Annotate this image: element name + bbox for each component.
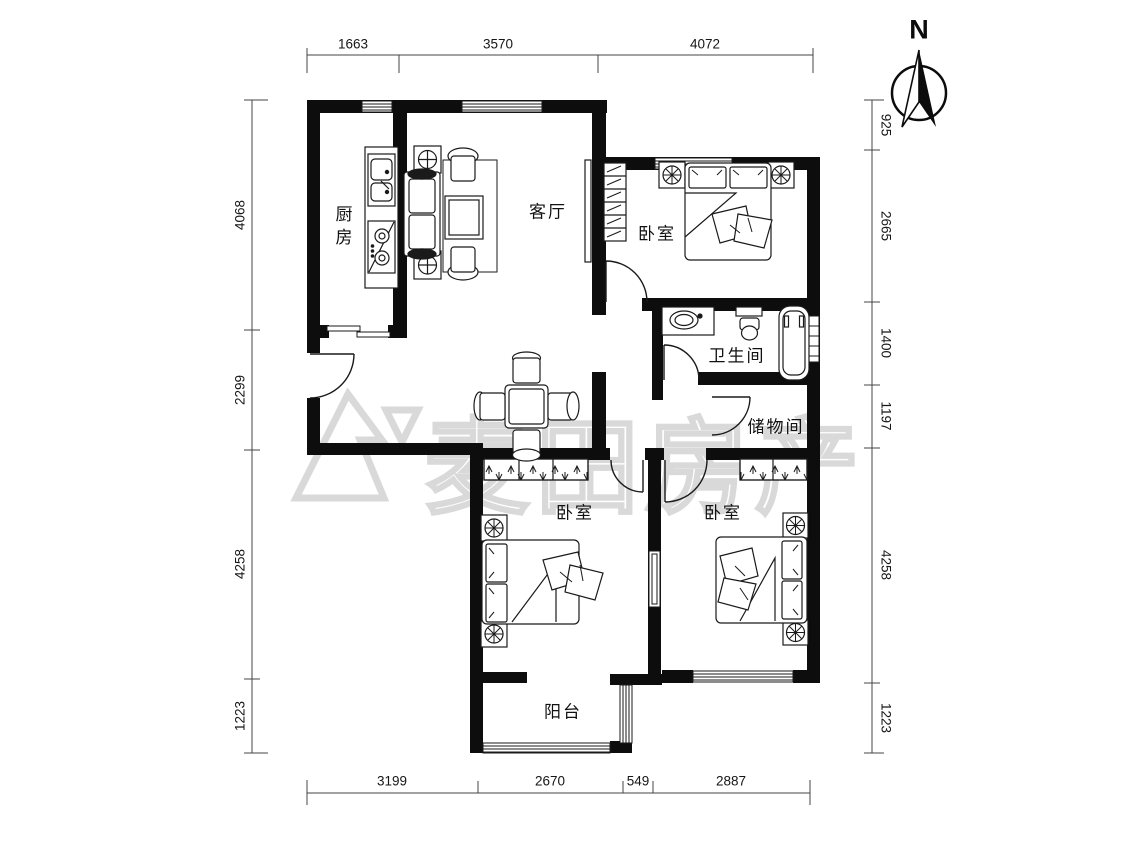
living-window xyxy=(462,101,542,112)
bedroom-left-nightstand-bottom xyxy=(481,621,507,647)
coffee-table xyxy=(445,196,483,239)
bedroom-right-wardrobe xyxy=(740,459,807,480)
entry-door xyxy=(310,354,354,398)
bathtub xyxy=(779,306,809,380)
kitchen-stove xyxy=(368,221,395,273)
north-label: N xyxy=(909,15,929,46)
bedroom-right-door xyxy=(665,460,707,502)
dim-top-1: 3570 xyxy=(483,37,513,52)
dim-right-5: 1223 xyxy=(879,703,894,733)
bedroom-right-nightstand-top xyxy=(783,513,808,538)
balcony-window-right xyxy=(620,685,632,743)
bathroom-door xyxy=(664,345,699,380)
dim-top-0: 1663 xyxy=(338,37,368,52)
dim-bottom-0: 3199 xyxy=(377,774,407,789)
bedroom-left-bed xyxy=(482,540,603,624)
north-arrow-icon xyxy=(892,50,946,127)
dining-chair-left xyxy=(474,392,505,420)
kitchen-sink xyxy=(368,154,395,206)
room-label-bedroom-left: 卧室 xyxy=(556,499,594,524)
armchair-top xyxy=(448,148,478,181)
bedroom-right-window xyxy=(693,671,793,682)
dining-table xyxy=(505,385,548,428)
bedroom-left-nightstand-top xyxy=(481,515,507,541)
bedroom-top-nightstand-right xyxy=(768,162,794,188)
storage-door xyxy=(712,397,750,435)
room-label-living: 客厅 xyxy=(529,198,567,223)
bedrooms-partition-window xyxy=(649,551,660,607)
bedroom-left-door xyxy=(611,460,643,492)
bedroom-top-nightstand-left xyxy=(659,162,685,188)
dim-top-2: 4072 xyxy=(690,37,720,52)
bathroom-window xyxy=(808,316,819,362)
dim-right-2: 1400 xyxy=(879,328,894,358)
bathroom-vanity xyxy=(662,307,714,335)
dining-chair-bottom xyxy=(513,430,541,461)
dim-right-0: 925 xyxy=(879,114,894,137)
dim-left-0: 4068 xyxy=(233,200,248,230)
tv-cabinet xyxy=(585,160,591,262)
room-label-balcony: 阳台 xyxy=(544,698,582,723)
balcony-window-bottom xyxy=(483,743,610,753)
room-label-bedroom-right: 卧室 xyxy=(704,499,742,524)
floor-plan-page: 麦田房产 xyxy=(0,0,1125,844)
dim-left-2: 4258 xyxy=(233,549,248,579)
room-label-bedroom-top: 卧室 xyxy=(638,220,676,245)
dim-bottom-3: 2887 xyxy=(716,774,746,789)
dining-chair-top xyxy=(513,352,541,383)
dim-bottom-1: 2670 xyxy=(535,774,565,789)
dim-left-3: 1223 xyxy=(233,701,248,731)
bedroom-right-bed xyxy=(716,537,807,623)
room-label-storage: 储物间 xyxy=(748,413,805,438)
bedroom-right-nightstand-bottom xyxy=(783,620,808,645)
dim-right-3: 1197 xyxy=(879,401,894,430)
dim-bottom-2: 549 xyxy=(627,774,650,789)
dim-right-1: 2665 xyxy=(879,211,894,241)
dim-right-4: 4258 xyxy=(879,550,894,580)
bedroom-left-wardrobe xyxy=(484,459,588,480)
room-label-kitchen: 厨房 xyxy=(330,205,355,251)
bedroom-top-door xyxy=(606,261,647,302)
dim-left-1: 2299 xyxy=(233,375,248,405)
sofa xyxy=(404,169,440,259)
bedroom-top-bed xyxy=(685,163,772,260)
dining-chair-right xyxy=(548,392,579,420)
room-label-bathroom: 卫生间 xyxy=(709,342,766,367)
kitchen-window xyxy=(362,101,392,112)
bedroom-top-shelf xyxy=(604,163,626,241)
kitchen-sliding-door xyxy=(327,326,390,337)
armchair-bottom xyxy=(448,247,478,280)
toilet xyxy=(736,307,762,340)
